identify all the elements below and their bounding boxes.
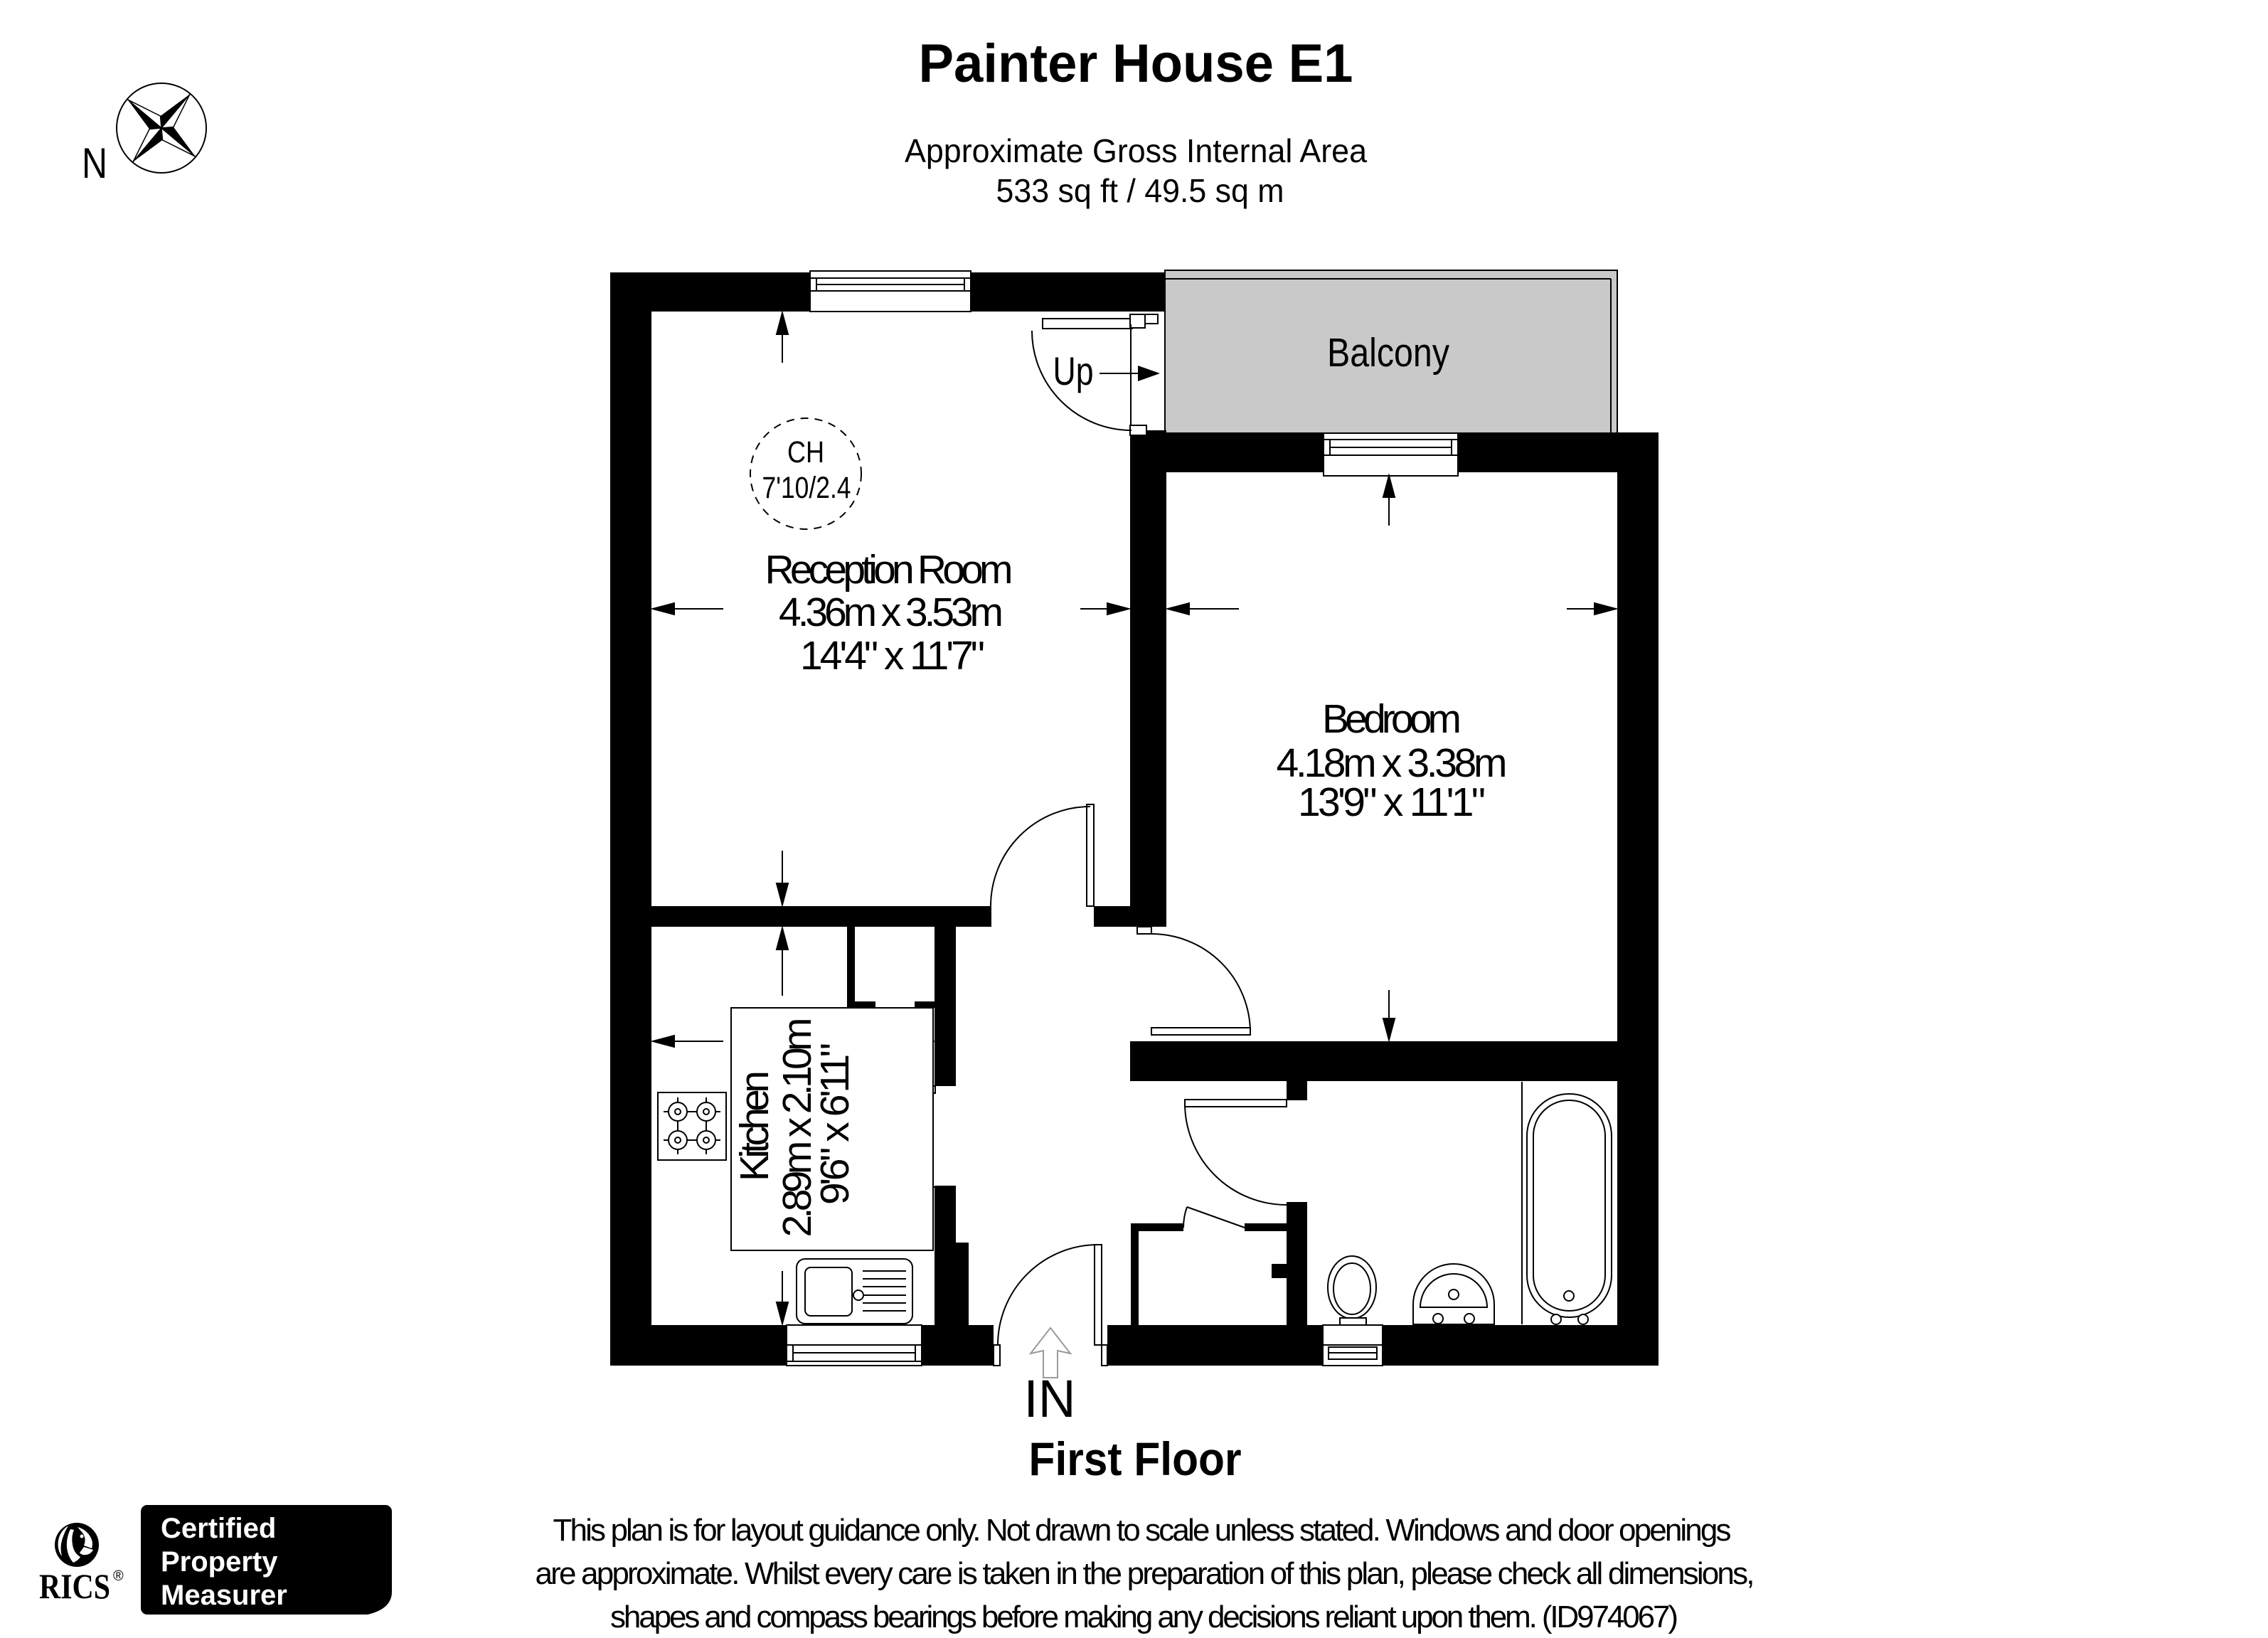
svg-text:Balcony: Balcony [1327,330,1449,376]
svg-text:7'10/2.4: 7'10/2.4 [762,471,851,505]
svg-text:533 sq ft / 49.5 sq m: 533 sq ft / 49.5 sq m [996,172,1284,209]
svg-text:CH: CH [787,435,824,469]
svg-text:RICS: RICS [39,1566,110,1606]
svg-text:Approximate Gross Internal Are: Approximate Gross Internal Area [905,132,1367,169]
svg-text:4.36m x 3.53m: 4.36m x 3.53m [779,590,1003,635]
svg-text:IN: IN [1024,1369,1076,1428]
svg-text:are approximate. Whilst every: are approximate. Whilst every care is ta… [536,1556,1755,1591]
svg-text:14'4" x 11'7": 14'4" x 11'7" [800,633,985,679]
svg-text:Measurer: Measurer [161,1580,287,1611]
svg-text:Certified: Certified [161,1513,276,1544]
svg-text:Reception Room: Reception Room [765,547,1013,592]
svg-text:Up: Up [1053,349,1094,393]
svg-text:Painter House E1: Painter House E1 [919,33,1353,94]
svg-text:Property: Property [161,1546,278,1578]
svg-text:N: N [82,139,107,187]
svg-text:®: ® [113,1568,124,1584]
svg-text:13'9" x 11'1": 13'9" x 11'1" [1298,780,1486,825]
svg-text:9'6" x 6'11": 9'6" x 6'11" [812,1043,858,1205]
svg-text:Kitchen: Kitchen [732,1070,777,1181]
svg-text:This plan is for layout guidan: This plan is for layout guidance only. N… [553,1513,1732,1548]
svg-text:shapes and compass bearings be: shapes and compass bearings before makin… [610,1600,1678,1634]
svg-text:First Floor: First Floor [1029,1432,1242,1485]
svg-text:Bedroom: Bedroom [1322,696,1462,742]
